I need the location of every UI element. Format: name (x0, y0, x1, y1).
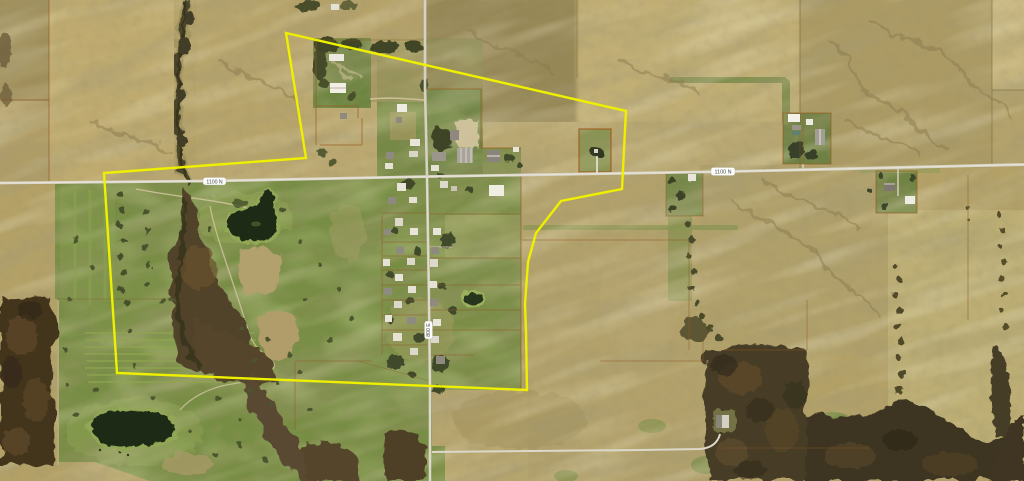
svg-text:800 E: 800 E (426, 323, 432, 337)
svg-text:1100 N: 1100 N (715, 170, 732, 176)
svg-text:1100 N: 1100 N (206, 179, 223, 185)
